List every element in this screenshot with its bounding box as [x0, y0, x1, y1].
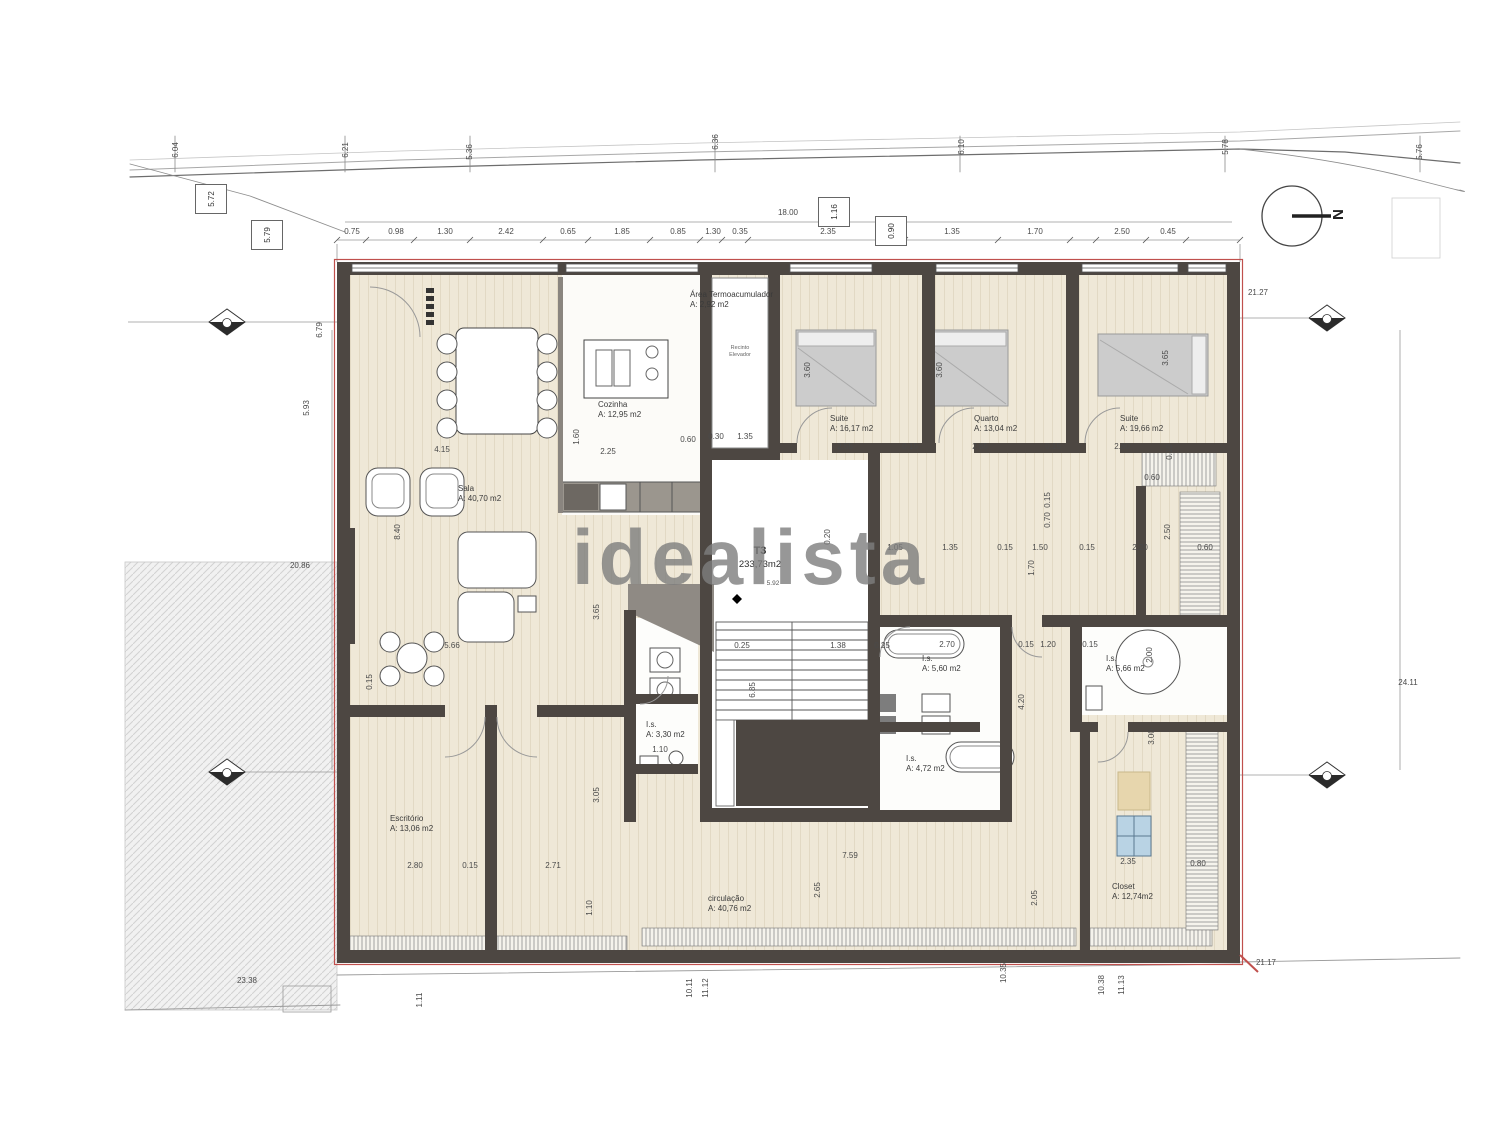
floor-plan-page: 0.750.981.302.420.651.850.851.300.352.35… [0, 0, 1500, 1125]
north-letter: N [1329, 209, 1346, 220]
staircase [716, 622, 868, 806]
elevator-label: Recinto Elevador [713, 345, 767, 359]
idealista-watermark: idealista [572, 512, 929, 603]
site-hatch-area [125, 562, 337, 1010]
elevator-shaft [712, 278, 768, 448]
north-arrow-icon [1262, 186, 1331, 246]
